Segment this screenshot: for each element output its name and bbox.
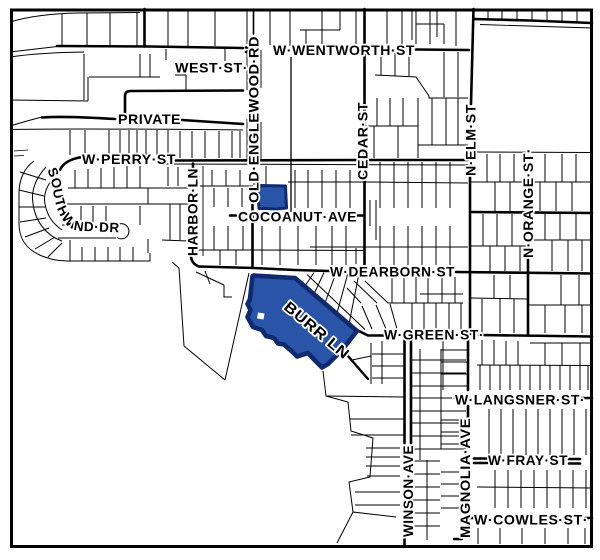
svg-text:W·LANGSNER·ST·: W·LANGSNER·ST· bbox=[455, 392, 585, 408]
svg-text:WINSON·AVE: WINSON·AVE bbox=[400, 445, 416, 537]
svg-text:W·PERRY·ST: W·PERRY·ST bbox=[82, 151, 176, 167]
svg-text:W·GREEN·ST·: W·GREEN·ST· bbox=[384, 327, 484, 343]
svg-text:W·DEARBORN·ST: W·DEARBORN·ST bbox=[330, 264, 455, 280]
svg-text:PRIVATE: PRIVATE bbox=[118, 111, 181, 127]
svg-text:HARBOR·LN: HARBOR·LN bbox=[185, 168, 201, 256]
svg-text:N·ELM·ST: N·ELM·ST bbox=[463, 104, 479, 176]
svg-text:WEST·ST·: WEST·ST· bbox=[175, 60, 248, 76]
svg-text:W·FRAY·ST: W·FRAY·ST bbox=[488, 452, 568, 468]
svg-text:COCOANUT·AVE: COCOANUT·AVE bbox=[238, 209, 357, 225]
svg-text:MAGNOLIA·AVE: MAGNOLIA·AVE bbox=[457, 418, 473, 538]
svg-text:W·WENTWORTH·ST: W·WENTWORTH·ST bbox=[273, 42, 415, 58]
svg-text:OLD·ENGLEWOOD·RD: OLD·ENGLEWOOD·RD bbox=[246, 36, 262, 203]
svg-text:CEDAR·ST: CEDAR·ST bbox=[355, 102, 371, 180]
svg-text:N·ORANGE·ST·: N·ORANGE·ST· bbox=[520, 148, 536, 258]
svg-text:W·COWLES·ST·: W·COWLES·ST· bbox=[474, 512, 588, 528]
